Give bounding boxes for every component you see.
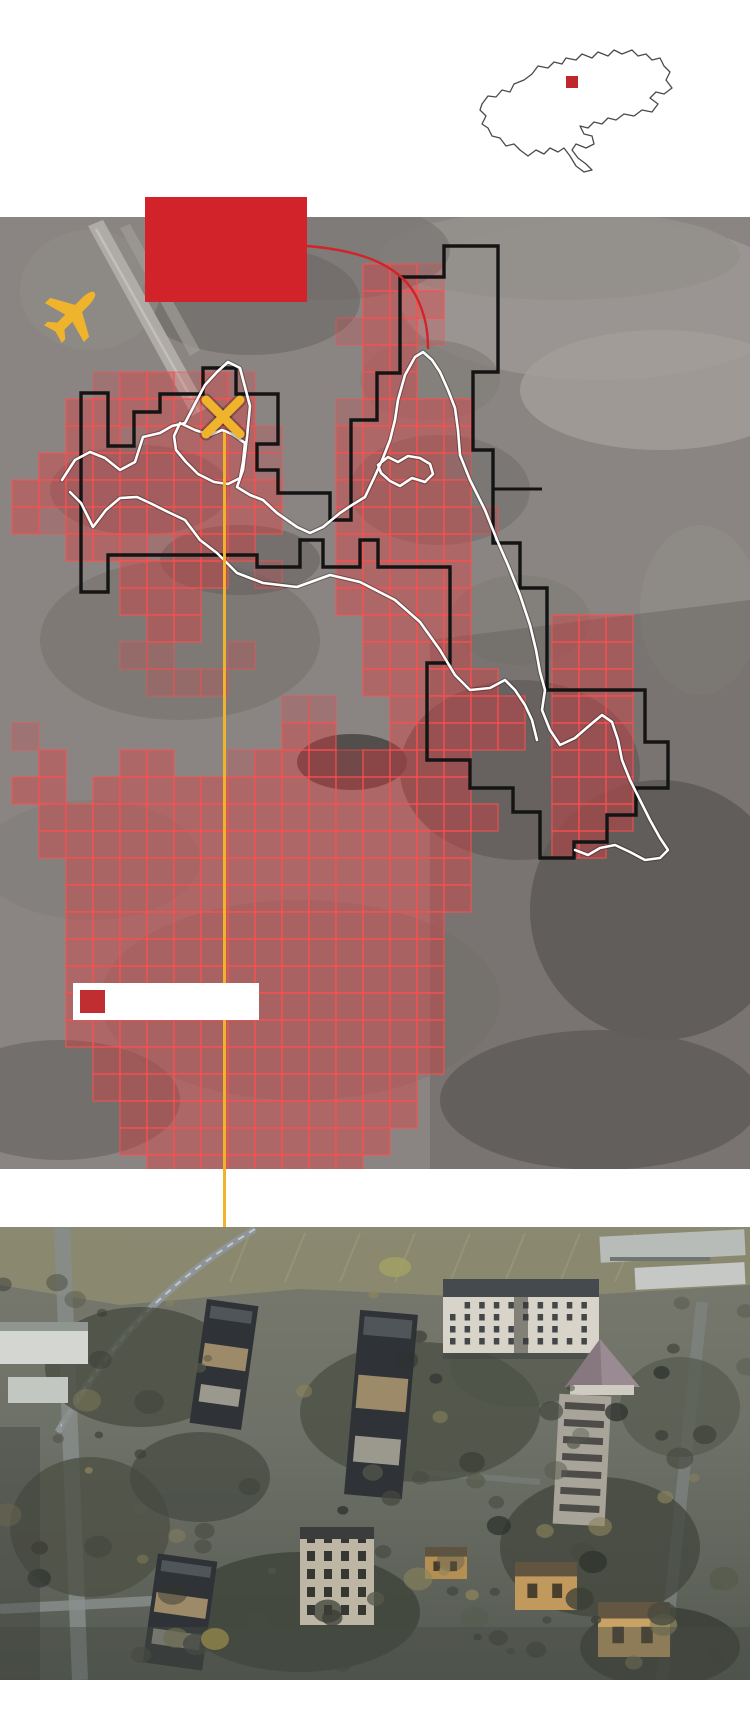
damage-cell xyxy=(120,1047,147,1074)
aerial-photo-svg xyxy=(0,1227,750,1680)
damage-cell xyxy=(282,912,309,939)
damage-cell xyxy=(579,750,606,777)
damage-cell xyxy=(228,777,255,804)
damage-cell xyxy=(228,750,255,777)
damage-cell xyxy=(444,858,471,885)
tree xyxy=(487,1516,511,1535)
damage-cell xyxy=(282,723,309,750)
damage-cell xyxy=(147,1155,174,1169)
damage-cell xyxy=(579,615,606,642)
damage-cell xyxy=(471,723,498,750)
damage-cell xyxy=(255,885,282,912)
damage-cell xyxy=(147,777,174,804)
damage-cell xyxy=(579,669,606,696)
damage-cell xyxy=(66,858,93,885)
damage-cell xyxy=(417,696,444,723)
damage-cell xyxy=(363,642,390,669)
damage-cell xyxy=(363,291,390,318)
damage-cell xyxy=(417,399,444,426)
damage-cell xyxy=(390,858,417,885)
damage-cell xyxy=(174,1047,201,1074)
damage-cell xyxy=(444,615,471,642)
damage-cell xyxy=(417,804,444,831)
damage-cell xyxy=(390,885,417,912)
tree xyxy=(73,1389,101,1412)
damage-cell xyxy=(363,804,390,831)
damage-cell xyxy=(228,1020,255,1047)
damage-cell xyxy=(336,588,363,615)
tree xyxy=(544,1461,567,1480)
damage-cell xyxy=(66,831,93,858)
damage-map xyxy=(0,217,750,1169)
damage-cell xyxy=(417,1020,444,1047)
damage-cell xyxy=(147,939,174,966)
damage-cell xyxy=(336,804,363,831)
damage-cell xyxy=(147,1020,174,1047)
damage-cell xyxy=(147,1101,174,1128)
damage-cell xyxy=(39,831,66,858)
tree xyxy=(647,1602,677,1626)
tree xyxy=(64,1291,85,1308)
damage-cell xyxy=(444,885,471,912)
damage-cell xyxy=(336,912,363,939)
tree xyxy=(166,1300,175,1307)
damage-cell xyxy=(336,318,363,345)
tree xyxy=(394,1350,418,1369)
tree xyxy=(657,1491,673,1504)
aerial-photo xyxy=(0,1227,750,1680)
tree xyxy=(322,1610,342,1626)
damage-cell xyxy=(255,912,282,939)
damage-cell xyxy=(471,804,498,831)
damage-cell xyxy=(255,966,282,993)
damage-cell xyxy=(552,804,579,831)
damage-cell xyxy=(336,750,363,777)
damage-cell xyxy=(228,1047,255,1074)
tree xyxy=(438,1567,449,1576)
damage-cell xyxy=(120,885,147,912)
damage-cell xyxy=(174,912,201,939)
tree xyxy=(367,1592,384,1606)
damage-cell xyxy=(282,1047,309,1074)
tree xyxy=(89,1351,112,1369)
damage-cell xyxy=(363,750,390,777)
tree xyxy=(666,1447,693,1469)
damage-cell xyxy=(390,723,417,750)
damage-cell xyxy=(363,669,390,696)
damage-cell xyxy=(39,480,66,507)
tree xyxy=(655,1430,668,1441)
damage-cell xyxy=(93,831,120,858)
damage-cell xyxy=(228,804,255,831)
damage-cell xyxy=(579,777,606,804)
damage-cell xyxy=(228,912,255,939)
damage-cell xyxy=(363,912,390,939)
damage-cell xyxy=(390,939,417,966)
damage-cell xyxy=(417,669,444,696)
damage-cell xyxy=(309,1074,336,1101)
damage-cell xyxy=(579,642,606,669)
tree xyxy=(566,1588,594,1611)
damage-cell xyxy=(444,507,471,534)
damage-cell xyxy=(174,939,201,966)
damage-cell xyxy=(336,1020,363,1047)
damage-cell xyxy=(390,696,417,723)
tree xyxy=(466,1473,485,1488)
damage-cell xyxy=(174,1101,201,1128)
ukraine-outline xyxy=(480,50,672,172)
damage-cell xyxy=(444,669,471,696)
damage-cell xyxy=(606,669,633,696)
damage-cell xyxy=(147,885,174,912)
tree xyxy=(97,1309,107,1317)
damage-cell xyxy=(444,696,471,723)
damage-cell xyxy=(120,1101,147,1128)
tree xyxy=(459,1452,485,1473)
damage-cell xyxy=(255,1074,282,1101)
damage-cell xyxy=(309,1128,336,1155)
damage-cell xyxy=(282,1101,309,1128)
damage-cell xyxy=(120,480,147,507)
damage-cell xyxy=(282,696,309,723)
damage-cell xyxy=(417,723,444,750)
damage-cell xyxy=(66,804,93,831)
damage-cell xyxy=(282,939,309,966)
damage-cell xyxy=(228,831,255,858)
damage-cell xyxy=(255,1155,282,1169)
damage-cell xyxy=(66,939,93,966)
tree xyxy=(296,1385,312,1398)
tree xyxy=(539,1401,563,1420)
damage-cell xyxy=(66,885,93,912)
tree xyxy=(447,1586,459,1595)
tree xyxy=(368,1290,378,1298)
damage-cell xyxy=(228,1101,255,1128)
damage-cell xyxy=(282,1128,309,1155)
damage-cell xyxy=(120,750,147,777)
damage-cell xyxy=(255,831,282,858)
damage-cell xyxy=(336,1128,363,1155)
tree xyxy=(490,1588,500,1596)
tree xyxy=(588,1517,612,1536)
damage-cell xyxy=(93,1047,120,1074)
damage-cell xyxy=(471,696,498,723)
damage-cell xyxy=(417,318,444,345)
damage-cell xyxy=(228,885,255,912)
damage-cell xyxy=(174,831,201,858)
damage-cell xyxy=(66,912,93,939)
damage-cell xyxy=(174,1074,201,1101)
damage-cell xyxy=(336,831,363,858)
damage-cell xyxy=(120,804,147,831)
damage-cell xyxy=(336,777,363,804)
damage-cell xyxy=(579,804,606,831)
damage-cell xyxy=(552,696,579,723)
damage-cell xyxy=(12,480,39,507)
damage-cell xyxy=(552,669,579,696)
damage-cell xyxy=(174,669,201,696)
damage-cell xyxy=(120,561,147,588)
tree xyxy=(375,1545,392,1558)
damage-cell xyxy=(282,777,309,804)
damage-cell xyxy=(390,615,417,642)
damage-cell xyxy=(363,1128,390,1155)
damage-cell xyxy=(255,1101,282,1128)
damage-cell xyxy=(363,345,390,372)
damage-cell xyxy=(120,777,147,804)
damage-cell xyxy=(147,669,174,696)
damage-cell xyxy=(417,480,444,507)
damage-cell xyxy=(309,1155,336,1169)
tree xyxy=(693,1425,717,1444)
tree xyxy=(536,1524,553,1538)
damage-cell xyxy=(309,885,336,912)
damage-cell xyxy=(147,750,174,777)
damage-cell xyxy=(93,777,120,804)
damage-cell xyxy=(147,615,174,642)
damage-cell xyxy=(120,858,147,885)
damage-cell xyxy=(120,588,147,615)
damage-cell xyxy=(147,453,174,480)
tree xyxy=(158,1581,187,1605)
damage-cell xyxy=(228,1074,255,1101)
damage-cell xyxy=(552,750,579,777)
damage-cell xyxy=(390,966,417,993)
damage-cell xyxy=(93,912,120,939)
damage-cell xyxy=(363,831,390,858)
damage-cell xyxy=(228,1155,255,1169)
apartment-block xyxy=(443,1279,599,1359)
damage-cell xyxy=(309,831,336,858)
damage-cell xyxy=(282,750,309,777)
damage-cell xyxy=(363,615,390,642)
damage-cell xyxy=(228,507,255,534)
tree xyxy=(135,1449,147,1458)
tree xyxy=(268,1568,277,1575)
damage-cell xyxy=(444,777,471,804)
tree xyxy=(605,1403,628,1421)
damage-cell xyxy=(147,1128,174,1155)
tree xyxy=(433,1411,448,1423)
damage-cell xyxy=(390,1020,417,1047)
damage-cell xyxy=(363,264,390,291)
tree xyxy=(689,1474,700,1483)
damage-cell xyxy=(93,804,120,831)
damage-cell xyxy=(471,669,498,696)
legend-damage-swatch xyxy=(80,990,105,1013)
tree xyxy=(412,1330,427,1342)
tree xyxy=(382,1491,401,1506)
damage-cell xyxy=(309,966,336,993)
damage-cell xyxy=(147,858,174,885)
damage-cell xyxy=(444,831,471,858)
damage-cell xyxy=(120,831,147,858)
damage-cell xyxy=(498,723,525,750)
damage-cell xyxy=(228,1128,255,1155)
locator-red-marker xyxy=(566,76,578,88)
damage-cell xyxy=(363,885,390,912)
legend xyxy=(73,983,259,1020)
damage-cell xyxy=(120,1128,147,1155)
damage-cell xyxy=(309,1020,336,1047)
tree xyxy=(489,1496,505,1509)
damage-cell xyxy=(309,939,336,966)
damage-cell xyxy=(93,1074,120,1101)
damage-cell xyxy=(255,804,282,831)
damage-cell xyxy=(606,615,633,642)
damage-cell xyxy=(120,912,147,939)
damage-cell xyxy=(282,966,309,993)
damage-cell xyxy=(363,318,390,345)
damage-cell xyxy=(444,480,471,507)
damage-cell xyxy=(255,858,282,885)
damage-cell xyxy=(336,885,363,912)
damage-cell xyxy=(390,561,417,588)
tree xyxy=(653,1366,669,1379)
damage-cell xyxy=(174,1155,201,1169)
damage-cell xyxy=(12,777,39,804)
damage-cell xyxy=(390,1101,417,1128)
damage-cell xyxy=(147,1047,174,1074)
damage-cell xyxy=(174,480,201,507)
damage-cell xyxy=(309,858,336,885)
damage-cell xyxy=(444,804,471,831)
damage-cell xyxy=(552,642,579,669)
damage-cell xyxy=(174,777,201,804)
damage-cell xyxy=(390,750,417,777)
tree xyxy=(591,1616,601,1624)
damage-cell xyxy=(363,777,390,804)
tree xyxy=(465,1590,478,1601)
damage-cell xyxy=(120,534,147,561)
damage-cell xyxy=(120,372,147,399)
damage-cell xyxy=(147,1074,174,1101)
damage-cell xyxy=(363,1047,390,1074)
damage-cell xyxy=(336,1155,363,1169)
damage-cell xyxy=(579,723,606,750)
damage-cell xyxy=(309,696,336,723)
damage-cell xyxy=(255,1128,282,1155)
tree xyxy=(193,1363,206,1373)
callout-box xyxy=(145,197,307,302)
damage-cell xyxy=(309,777,336,804)
tree xyxy=(168,1529,185,1543)
damage-cell xyxy=(309,993,336,1020)
news-graphic xyxy=(0,0,750,1732)
damage-cell xyxy=(336,858,363,885)
damage-cell xyxy=(417,912,444,939)
damage-cell xyxy=(336,1047,363,1074)
damage-cell xyxy=(390,642,417,669)
damage-cell xyxy=(147,561,174,588)
tree xyxy=(134,1390,164,1414)
damage-cell xyxy=(39,507,66,534)
damage-cell xyxy=(390,1047,417,1074)
damage-cell xyxy=(417,993,444,1020)
tree xyxy=(404,1567,433,1590)
damage-cell xyxy=(174,588,201,615)
damage-cell xyxy=(228,858,255,885)
damage-cell xyxy=(66,1020,93,1047)
damage-cell xyxy=(579,696,606,723)
tree xyxy=(203,1355,212,1362)
damage-cell xyxy=(174,885,201,912)
damage-cell xyxy=(174,858,201,885)
damage-cell xyxy=(417,507,444,534)
tree xyxy=(362,1464,382,1480)
damage-cell xyxy=(390,534,417,561)
tree xyxy=(709,1567,738,1590)
tree xyxy=(194,1523,214,1539)
tree xyxy=(674,1297,690,1310)
damage-cell xyxy=(147,588,174,615)
damage-cell xyxy=(444,723,471,750)
tree xyxy=(84,1536,112,1558)
damage-cell xyxy=(309,912,336,939)
damage-cell xyxy=(417,831,444,858)
damage-cell xyxy=(336,1074,363,1101)
damage-cell xyxy=(444,561,471,588)
damage-cell xyxy=(363,1101,390,1128)
damage-cell xyxy=(417,426,444,453)
damage-cell xyxy=(309,1047,336,1074)
tree xyxy=(429,1373,442,1383)
damage-cell xyxy=(417,750,444,777)
damage-cell xyxy=(417,588,444,615)
ukraine-locator-map xyxy=(474,40,674,180)
damage-cell xyxy=(309,804,336,831)
damage-cell xyxy=(363,966,390,993)
tree xyxy=(567,1385,575,1392)
damage-cell xyxy=(444,750,471,777)
damage-cell xyxy=(390,777,417,804)
damage-cell xyxy=(228,642,255,669)
damage-cell xyxy=(228,939,255,966)
damage-cell xyxy=(363,1020,390,1047)
damage-cell xyxy=(282,804,309,831)
tree xyxy=(542,1616,551,1623)
damage-cell xyxy=(417,561,444,588)
damage-cell xyxy=(174,1020,201,1047)
damage-cell xyxy=(282,885,309,912)
damage-cell xyxy=(255,1020,282,1047)
tree xyxy=(95,1432,103,1439)
tree xyxy=(460,1607,488,1630)
damage-cell xyxy=(282,1155,309,1169)
damage-cell xyxy=(390,318,417,345)
damage-cell xyxy=(309,750,336,777)
damage-cell xyxy=(282,1074,309,1101)
damage-cell xyxy=(390,669,417,696)
damage-cell xyxy=(363,858,390,885)
damage-cell xyxy=(147,534,174,561)
damage-cell xyxy=(390,507,417,534)
damage-cell xyxy=(552,615,579,642)
damage-cell xyxy=(336,966,363,993)
damage-cell xyxy=(282,1020,309,1047)
damage-cell xyxy=(390,291,417,318)
tree xyxy=(194,1539,212,1553)
tree xyxy=(85,1467,93,1473)
damage-cell xyxy=(417,777,444,804)
damage-cell xyxy=(606,642,633,669)
damage-cell xyxy=(255,993,282,1020)
tree xyxy=(239,1478,261,1495)
damage-cell xyxy=(363,939,390,966)
damage-cell xyxy=(174,561,201,588)
damage-cell xyxy=(444,534,471,561)
damage-cell xyxy=(552,777,579,804)
